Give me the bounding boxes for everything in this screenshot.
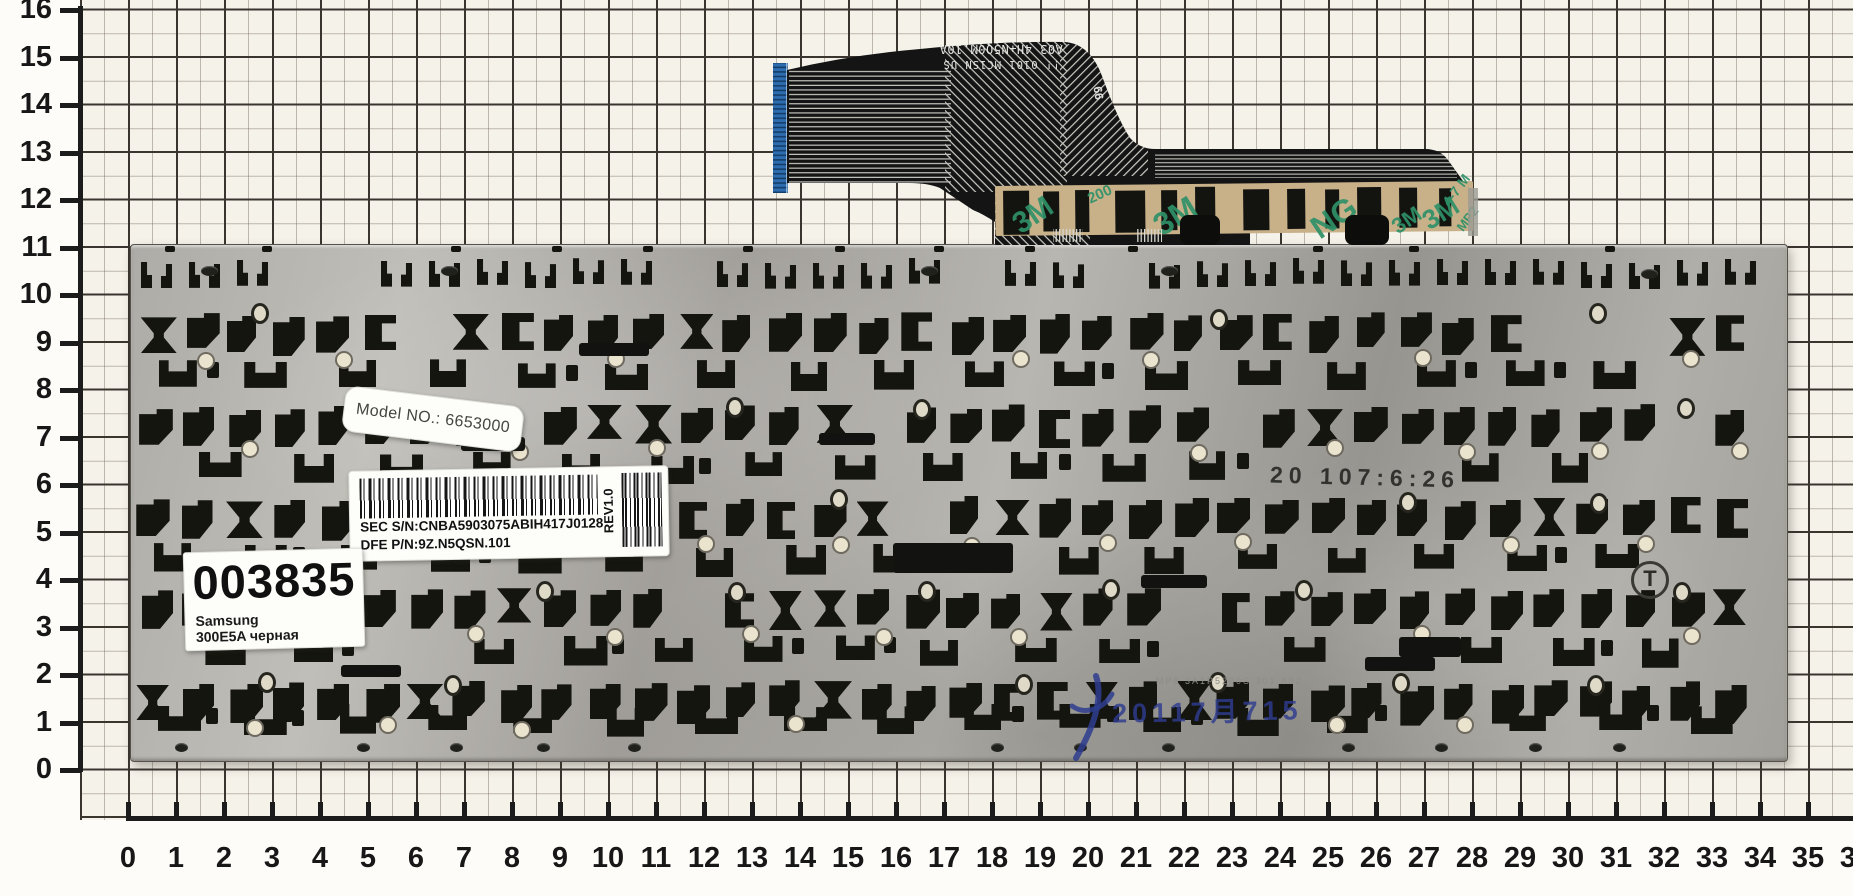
x-ruler-tick	[222, 802, 227, 817]
plate-hole	[1327, 362, 1366, 390]
plate-hole	[1263, 314, 1292, 351]
x-ruler-number: 33	[1688, 842, 1736, 875]
plate-hole	[680, 314, 713, 349]
plate-hole	[1715, 410, 1744, 446]
x-ruler-number: 1	[152, 842, 200, 875]
screw-hole-dot	[608, 630, 622, 644]
plate-edge-notch	[743, 246, 753, 252]
plate-hole	[411, 589, 443, 628]
x-ruler-tick	[366, 802, 371, 817]
x-ruler-tick	[606, 802, 611, 817]
plate-edge-notch	[1605, 246, 1615, 252]
rivet-ring	[258, 672, 276, 693]
y-ruler-number: 15	[4, 41, 52, 74]
x-ruler-number: 2	[200, 842, 248, 875]
x-ruler-tick	[1614, 802, 1619, 817]
plate-hole	[454, 590, 485, 628]
screw-hole-dot	[1101, 536, 1115, 550]
plate-hole	[1402, 409, 1434, 444]
y-ruler-tick	[60, 56, 81, 61]
rivet-ring	[1015, 674, 1033, 695]
plate-hole	[1245, 260, 1256, 286]
plate-hole	[1554, 362, 1566, 378]
plate-hole	[859, 318, 888, 354]
plate-hole	[139, 409, 173, 445]
screw-hole-dot	[1236, 535, 1250, 549]
x-ruler-number: 24	[1256, 842, 1304, 875]
x-ruler-tick	[1230, 802, 1235, 817]
part-number-text: DFE P/N:9Z.N5QSN.101	[360, 535, 510, 553]
plate-hole	[1217, 498, 1251, 533]
plate-hole	[1623, 500, 1655, 535]
screw-hole-dot	[1330, 718, 1344, 732]
plate-hole	[769, 407, 799, 445]
date-stamp-black: 20 107:6:26	[1270, 462, 1461, 494]
plate-hole	[881, 265, 892, 289]
y-ruler-tick	[60, 293, 81, 298]
screw-hole-dot	[650, 441, 664, 455]
x-ruler-number: 28	[1448, 842, 1496, 875]
plate-hole	[1361, 262, 1372, 286]
x-ruler-tick	[318, 802, 323, 817]
plate-hole	[1222, 593, 1250, 633]
plate-hole	[189, 262, 200, 288]
plate-hole	[573, 258, 584, 284]
plate-hole	[992, 404, 1025, 441]
plate-hole	[1354, 589, 1387, 624]
plate-hole	[1717, 499, 1748, 538]
plate-edge-notch	[643, 246, 653, 252]
plate-hole	[696, 548, 733, 577]
x-ruler-number: 20	[1064, 842, 1112, 875]
plate-hole	[1642, 638, 1679, 667]
x-ruler-number: 22	[1160, 842, 1208, 875]
plate-hole	[813, 263, 824, 289]
rivet-ring	[726, 397, 744, 418]
plate-hole	[274, 500, 305, 538]
plate-hole	[767, 502, 795, 540]
x-ruler-number: 26	[1352, 842, 1400, 875]
plate-hole	[187, 313, 220, 348]
plate-hole	[141, 317, 177, 353]
plate-hole	[1553, 638, 1595, 666]
plate-hole	[1238, 360, 1281, 385]
x-ruler-tick	[1038, 802, 1043, 817]
plate-hole	[497, 588, 532, 622]
plate-hole	[1011, 452, 1048, 479]
plate-hole	[199, 452, 242, 477]
ribbon-cable: 3M 200 3M NG 3M 4-7 M MP2 3M !! 0101 MC1	[770, 28, 1482, 260]
ribbon-cable-illustration: 3M 200 3M NG 3M 4-7 M MP2 3M	[770, 28, 1482, 260]
plate-hole	[474, 639, 514, 665]
vent-oval	[1342, 743, 1355, 752]
plate-hole	[136, 499, 169, 536]
plate-hole	[1531, 409, 1559, 447]
plate-hole	[206, 708, 218, 724]
y-ruler-number: 1	[4, 706, 52, 739]
plate-hole	[946, 593, 979, 628]
x-ruler-tick	[126, 802, 131, 817]
rivet-ring	[728, 582, 746, 603]
rivet-ring	[444, 675, 462, 696]
plate-hole	[769, 591, 802, 631]
plate-hole	[769, 313, 802, 352]
plate-hole	[1533, 498, 1565, 536]
plate-hole	[227, 316, 256, 352]
plate-hole	[1725, 259, 1736, 285]
x-ruler-tick	[510, 802, 515, 817]
plate-hole	[1054, 361, 1096, 386]
barcode-small	[621, 472, 662, 547]
cable-print-line1: !! 0101 MC1SN US	[903, 56, 1099, 71]
ground-boss-mark: T	[1631, 561, 1669, 599]
x-ruler-number: 29	[1496, 842, 1544, 875]
x-ruler-tick	[1086, 802, 1091, 817]
screw-hole-dot	[381, 718, 395, 732]
x-ruler-number: 34	[1736, 842, 1784, 875]
plate-hole	[587, 405, 622, 439]
x-ruler-tick	[750, 802, 755, 817]
plate-hole	[862, 684, 892, 720]
plate-hole	[182, 500, 213, 539]
plate-hole	[1059, 454, 1071, 470]
plate-hole	[1713, 589, 1747, 625]
plate-hole	[237, 260, 248, 286]
rivet-ring	[251, 303, 269, 324]
x-ruler-tick	[654, 802, 659, 817]
plate-hole	[429, 261, 440, 287]
inventory-number: 003835	[192, 551, 356, 610]
plate-hole	[244, 362, 287, 388]
plate-hole	[901, 312, 932, 350]
y-ruler-tick	[60, 246, 81, 251]
plate-hole	[159, 360, 197, 386]
plate-hole	[836, 635, 875, 660]
x-ruler-number: 15	[824, 842, 872, 875]
x-ruler-number: 25	[1304, 842, 1352, 875]
x-ruler-tick	[1758, 802, 1763, 817]
rivet-ring	[1677, 398, 1695, 419]
plate-hole	[365, 315, 396, 350]
plate-hole	[950, 496, 978, 534]
screw-hole-dot	[248, 721, 262, 735]
plate-hole	[1309, 316, 1339, 353]
plate-hole	[1401, 312, 1432, 347]
plate-hole	[401, 263, 412, 287]
plate-hole	[1629, 263, 1640, 289]
plate-hole	[1012, 706, 1024, 722]
plate-hole	[786, 545, 826, 575]
plate-hole	[1581, 262, 1592, 288]
vent-oval	[450, 743, 463, 752]
plate-hole	[737, 263, 748, 287]
screw-hole-dot	[199, 354, 213, 368]
plate-hole	[1237, 453, 1249, 469]
x-ruler-tick	[1422, 802, 1427, 817]
plate-hole	[1025, 262, 1036, 286]
plate-hole	[1593, 361, 1636, 389]
x-ruler-tick	[1566, 802, 1571, 817]
etched-part-text: MP8 3A1P5200S 301 A02	[1156, 676, 1303, 686]
y-ruler-number: 7	[4, 421, 52, 454]
vent-oval	[1161, 266, 1178, 276]
stabilizer-slot	[1141, 575, 1207, 588]
plate-hole	[814, 590, 846, 626]
stabilizer-slot	[341, 665, 401, 677]
y-ruler-tick	[60, 768, 81, 773]
plate-hole	[1082, 409, 1113, 447]
plate-hole	[1581, 589, 1612, 629]
plate-hole	[1505, 261, 1516, 285]
screw-hole-dot	[834, 538, 848, 552]
plate-hole	[141, 262, 152, 288]
plate-hole	[635, 405, 672, 444]
y-ruler-number: 11	[4, 231, 52, 264]
plate-hole	[1552, 453, 1589, 483]
x-ruler-number: 13	[728, 842, 776, 875]
y-ruler-number: 0	[4, 753, 52, 786]
plate-hole	[1328, 548, 1366, 573]
vent-oval	[537, 743, 550, 752]
y-ruler-tick	[60, 531, 81, 536]
plate-hole	[1147, 641, 1159, 657]
x-ruler-tick	[1374, 802, 1379, 817]
plate-hole	[1082, 316, 1112, 350]
plate-hole	[544, 315, 574, 351]
x-ruler-tick	[1134, 802, 1139, 817]
plate-hole	[593, 260, 604, 284]
plate-hole	[1040, 593, 1073, 631]
plate-hole	[275, 409, 305, 447]
y-ruler-tick	[60, 626, 81, 631]
plate-hole	[874, 360, 914, 390]
plate-hole	[183, 407, 214, 446]
plate-hole	[1457, 261, 1468, 285]
plate-hole	[381, 261, 392, 287]
screw-hole-dot	[337, 353, 351, 367]
plate-hole	[1400, 591, 1429, 629]
brand-text: Samsung	[195, 611, 258, 629]
x-ruler-number: 35	[1784, 842, 1832, 875]
plate-hole	[1129, 405, 1161, 443]
plate-hole	[681, 408, 713, 444]
x-ruler-number: 6	[392, 842, 440, 875]
x-ruler-tick	[1518, 802, 1523, 817]
y-ruler-tick	[60, 151, 81, 156]
plate-hole	[1465, 362, 1477, 378]
vent-oval	[1162, 743, 1175, 752]
plate-hole	[1177, 407, 1209, 441]
serial-barcode-sticker: SEC S/N:CNBA5903075ABIH417J0128 DFE P/N:…	[348, 465, 670, 562]
y-ruler-tick	[60, 578, 81, 583]
plate-hole	[545, 264, 556, 288]
plate-hole	[1445, 588, 1475, 625]
plate-hole	[1217, 263, 1228, 287]
plate-edge-notch	[451, 246, 461, 252]
plate-hole	[1053, 262, 1064, 288]
x-ruler-tick	[174, 802, 179, 817]
rivet-ring	[1210, 309, 1228, 330]
rivet-ring	[1295, 580, 1313, 601]
plate-hole	[340, 704, 377, 734]
stabilizer-slot	[579, 343, 649, 356]
x-ruler-number: 18	[968, 842, 1016, 875]
plate-hole	[502, 313, 534, 350]
plate-hole	[857, 501, 889, 535]
vent-oval	[175, 743, 188, 752]
vent-oval	[357, 743, 370, 752]
screw-hole-dot	[469, 627, 483, 641]
y-ruler-number: 3	[4, 611, 52, 644]
plate-hole	[1506, 360, 1545, 386]
x-ruler-tick	[462, 802, 467, 817]
x-ruler-tick	[1710, 802, 1715, 817]
plate-hole	[1745, 261, 1756, 285]
x-ruler-number: 32	[1640, 842, 1688, 875]
x-ruler-tick	[1182, 802, 1187, 817]
screw-hole-dot	[1685, 629, 1699, 643]
plate-hole	[1533, 589, 1564, 627]
plate-hole	[857, 589, 890, 624]
x-ruler-number: 3	[248, 842, 296, 875]
plate-hole	[1149, 263, 1160, 289]
x-ruler-number: 21	[1112, 842, 1160, 875]
plate-hole	[1312, 498, 1346, 533]
plate-hole	[1293, 258, 1304, 284]
x-ruler-tick	[846, 802, 851, 817]
x-ruler-number: 10	[584, 842, 632, 875]
vent-oval	[1641, 269, 1658, 279]
plate-hole	[1130, 313, 1163, 350]
plate-hole	[497, 261, 508, 285]
plate-hole	[1491, 591, 1523, 630]
plate-hole	[1599, 703, 1642, 730]
plate-hole	[1601, 640, 1613, 656]
rivet-ring	[918, 581, 936, 602]
x-ruler-tick	[270, 802, 275, 817]
vent-oval	[991, 743, 1004, 752]
plate-hole	[1040, 314, 1070, 354]
x-ruler-tick	[798, 802, 803, 817]
y-ruler-tick	[60, 198, 81, 203]
date-stamp-blue: 20117月715	[1112, 688, 1303, 730]
serial-number-text: SEC S/N:CNBA5903075ABIH417J0128	[360, 515, 603, 534]
screw-hole-dot	[877, 630, 891, 644]
plate-hole	[226, 501, 263, 538]
cable-side-mark: 99	[1091, 85, 1107, 101]
plate-hole	[1553, 261, 1564, 285]
x-ruler-number: 11	[632, 842, 680, 875]
plate-hole	[679, 502, 707, 539]
x-ruler-number: 16	[872, 842, 920, 875]
x-ruler-number: 0	[104, 842, 152, 875]
plate-edge-notch	[262, 246, 272, 252]
plate-hole	[1073, 264, 1084, 288]
plate-hole	[1595, 544, 1639, 569]
plate-hole	[1555, 547, 1567, 563]
plate-hole	[1059, 547, 1099, 575]
plate-hole	[161, 264, 172, 288]
plate-hole	[950, 409, 982, 443]
plate-hole	[1580, 407, 1613, 441]
y-ruler-number: 4	[4, 563, 52, 596]
plate-hole	[1082, 500, 1114, 535]
plate-hole	[1601, 264, 1612, 288]
screw-hole-dot	[1593, 444, 1607, 458]
stabilizer-slot	[1399, 637, 1461, 657]
plate-hole	[1005, 260, 1016, 286]
screw-hole-dot	[1144, 353, 1158, 367]
screw-hole-dot	[1014, 352, 1028, 366]
x-ruler-tick	[414, 802, 419, 817]
rivet-ring	[913, 399, 931, 420]
plate-hole	[745, 452, 782, 476]
plate-hole	[765, 263, 776, 289]
plate-hole	[909, 258, 920, 284]
plate-hole	[1284, 637, 1326, 662]
plate-hole	[430, 359, 466, 387]
plate-hole	[1509, 704, 1545, 731]
plate-hole	[835, 455, 876, 479]
y-ruler-tick	[60, 721, 81, 726]
plate-hole	[697, 360, 735, 388]
plate-hole	[1265, 591, 1295, 625]
plate-hole	[1444, 684, 1472, 720]
plate-hole	[1127, 588, 1161, 625]
plate-hole	[1102, 454, 1145, 482]
plate-hole	[428, 705, 467, 730]
plate-hole	[1669, 318, 1705, 356]
y-ruler-number: 5	[4, 516, 52, 549]
plate-hole	[605, 364, 648, 390]
y-ruler-tick	[60, 436, 81, 441]
screw-hole-dot	[1504, 538, 1518, 552]
plate-hole	[1485, 259, 1496, 285]
plate-hole	[1313, 260, 1324, 284]
x-ruler-number: 5	[344, 842, 392, 875]
plate-hole	[316, 316, 349, 352]
x-ruler-number: 19	[1016, 842, 1064, 875]
cable-print-text: !! 0101 MC1SN US A03 4H+N5Q0M.10A	[903, 41, 1099, 71]
plate-hole	[1263, 409, 1295, 448]
plate-hole	[633, 589, 662, 628]
x-ruler-number: 7	[440, 842, 488, 875]
x-ruler-number: 17	[920, 842, 968, 875]
x-ruler-number: 31	[1592, 842, 1640, 875]
rivet-ring	[1587, 675, 1605, 696]
y-ruler-tick	[60, 8, 81, 13]
screw-hole-dot	[1639, 537, 1653, 551]
screw-hole-dot	[1458, 718, 1472, 732]
screw-hole-dot	[699, 537, 713, 551]
plate-hole	[1129, 500, 1163, 540]
inventory-label: 003835 Samsung 300E5A черная	[183, 548, 366, 652]
screw-hole-dot	[1460, 445, 1474, 459]
plate-hole	[477, 259, 488, 285]
plate-edge-notch	[165, 246, 175, 252]
plate-hole	[923, 453, 963, 482]
rivet-ring	[1102, 579, 1120, 600]
plate-hole	[518, 363, 556, 387]
plate-hole	[717, 261, 728, 287]
x-ruler-tick	[894, 802, 899, 817]
plate-hole	[1039, 410, 1070, 449]
x-ruler-tick	[990, 802, 995, 817]
x-ruler-tick	[1326, 802, 1331, 817]
plate-hole	[1442, 318, 1474, 355]
y-ruler-number: 12	[4, 183, 52, 216]
y-ruler-number: 6	[4, 468, 52, 501]
